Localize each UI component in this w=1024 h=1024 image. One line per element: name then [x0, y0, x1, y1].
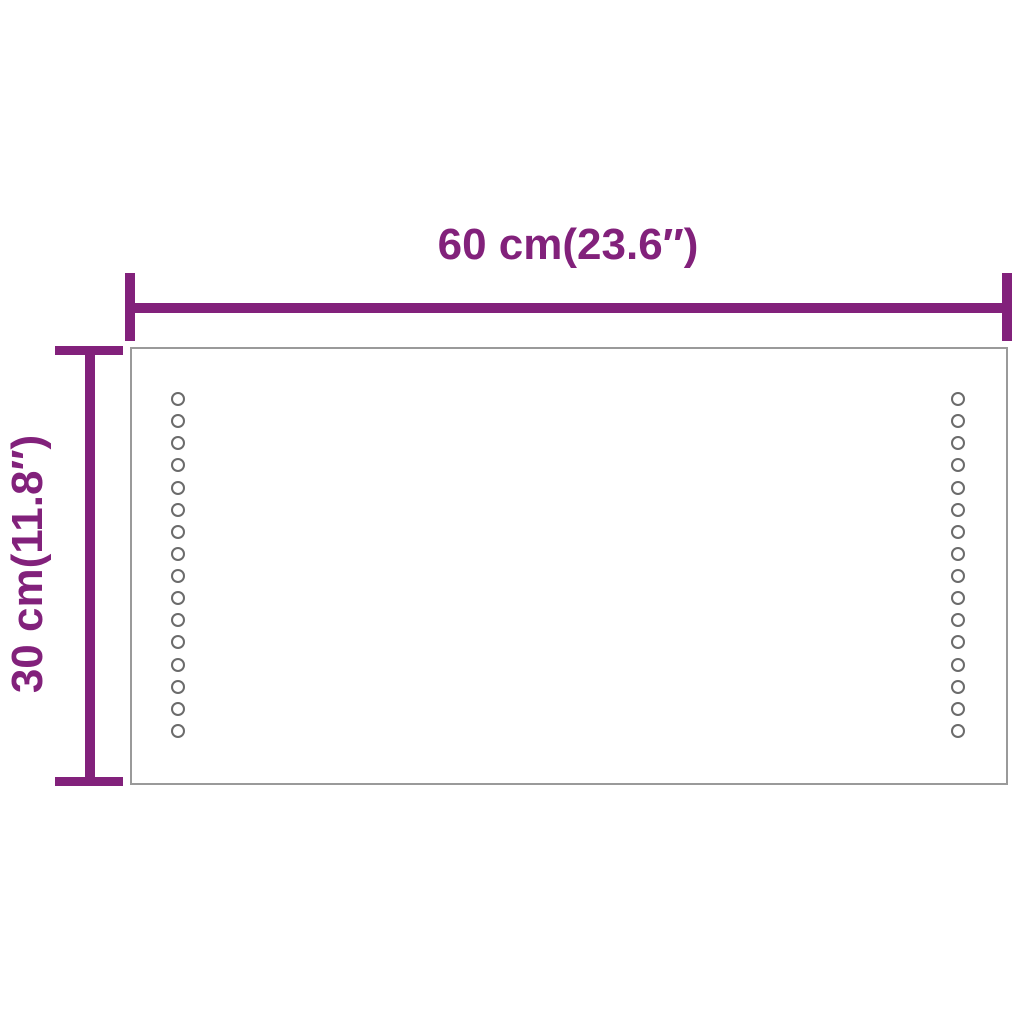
led-dot	[171, 525, 185, 539]
led-dot	[171, 702, 185, 716]
led-dot	[171, 591, 185, 605]
led-dot	[951, 635, 965, 649]
led-column-right	[951, 392, 965, 738]
led-dot	[951, 658, 965, 672]
led-dot	[951, 436, 965, 450]
height-dimension-endcap-top	[55, 346, 123, 355]
led-dot	[951, 458, 965, 472]
height-dimension-label: 30 cm(11.8″)	[3, 435, 53, 693]
led-dot	[171, 503, 185, 517]
led-dot	[171, 724, 185, 738]
height-dimension-line	[85, 347, 95, 785]
led-dot	[171, 458, 185, 472]
led-dot	[951, 392, 965, 406]
led-dot	[951, 569, 965, 583]
led-dot	[951, 481, 965, 495]
led-column-left	[171, 392, 185, 738]
led-dot	[951, 547, 965, 561]
led-dot	[171, 414, 185, 428]
led-dot	[951, 724, 965, 738]
led-dot	[171, 658, 185, 672]
width-dimension-endcap-left	[125, 273, 135, 341]
led-dot	[171, 481, 185, 495]
led-dot	[951, 525, 965, 539]
led-dot	[171, 613, 185, 627]
led-dot	[171, 547, 185, 561]
led-dot	[951, 702, 965, 716]
height-dimension-endcap-bottom	[55, 777, 123, 786]
product-dimension-diagram: 60 cm(23.6″) 30 cm(11.8″)	[0, 0, 1024, 1024]
width-dimension-line	[130, 303, 1008, 313]
led-dot	[171, 392, 185, 406]
led-dot	[171, 436, 185, 450]
width-dimension-label: 60 cm(23.6″)	[438, 220, 699, 270]
led-dot	[951, 503, 965, 517]
led-dot	[951, 613, 965, 627]
led-dot	[171, 569, 185, 583]
width-dimension-endcap-right	[1002, 273, 1012, 341]
led-dot	[171, 635, 185, 649]
led-dot	[951, 414, 965, 428]
led-dot	[171, 680, 185, 694]
led-dot	[951, 680, 965, 694]
led-dot	[951, 591, 965, 605]
mirror-outline	[130, 347, 1008, 785]
